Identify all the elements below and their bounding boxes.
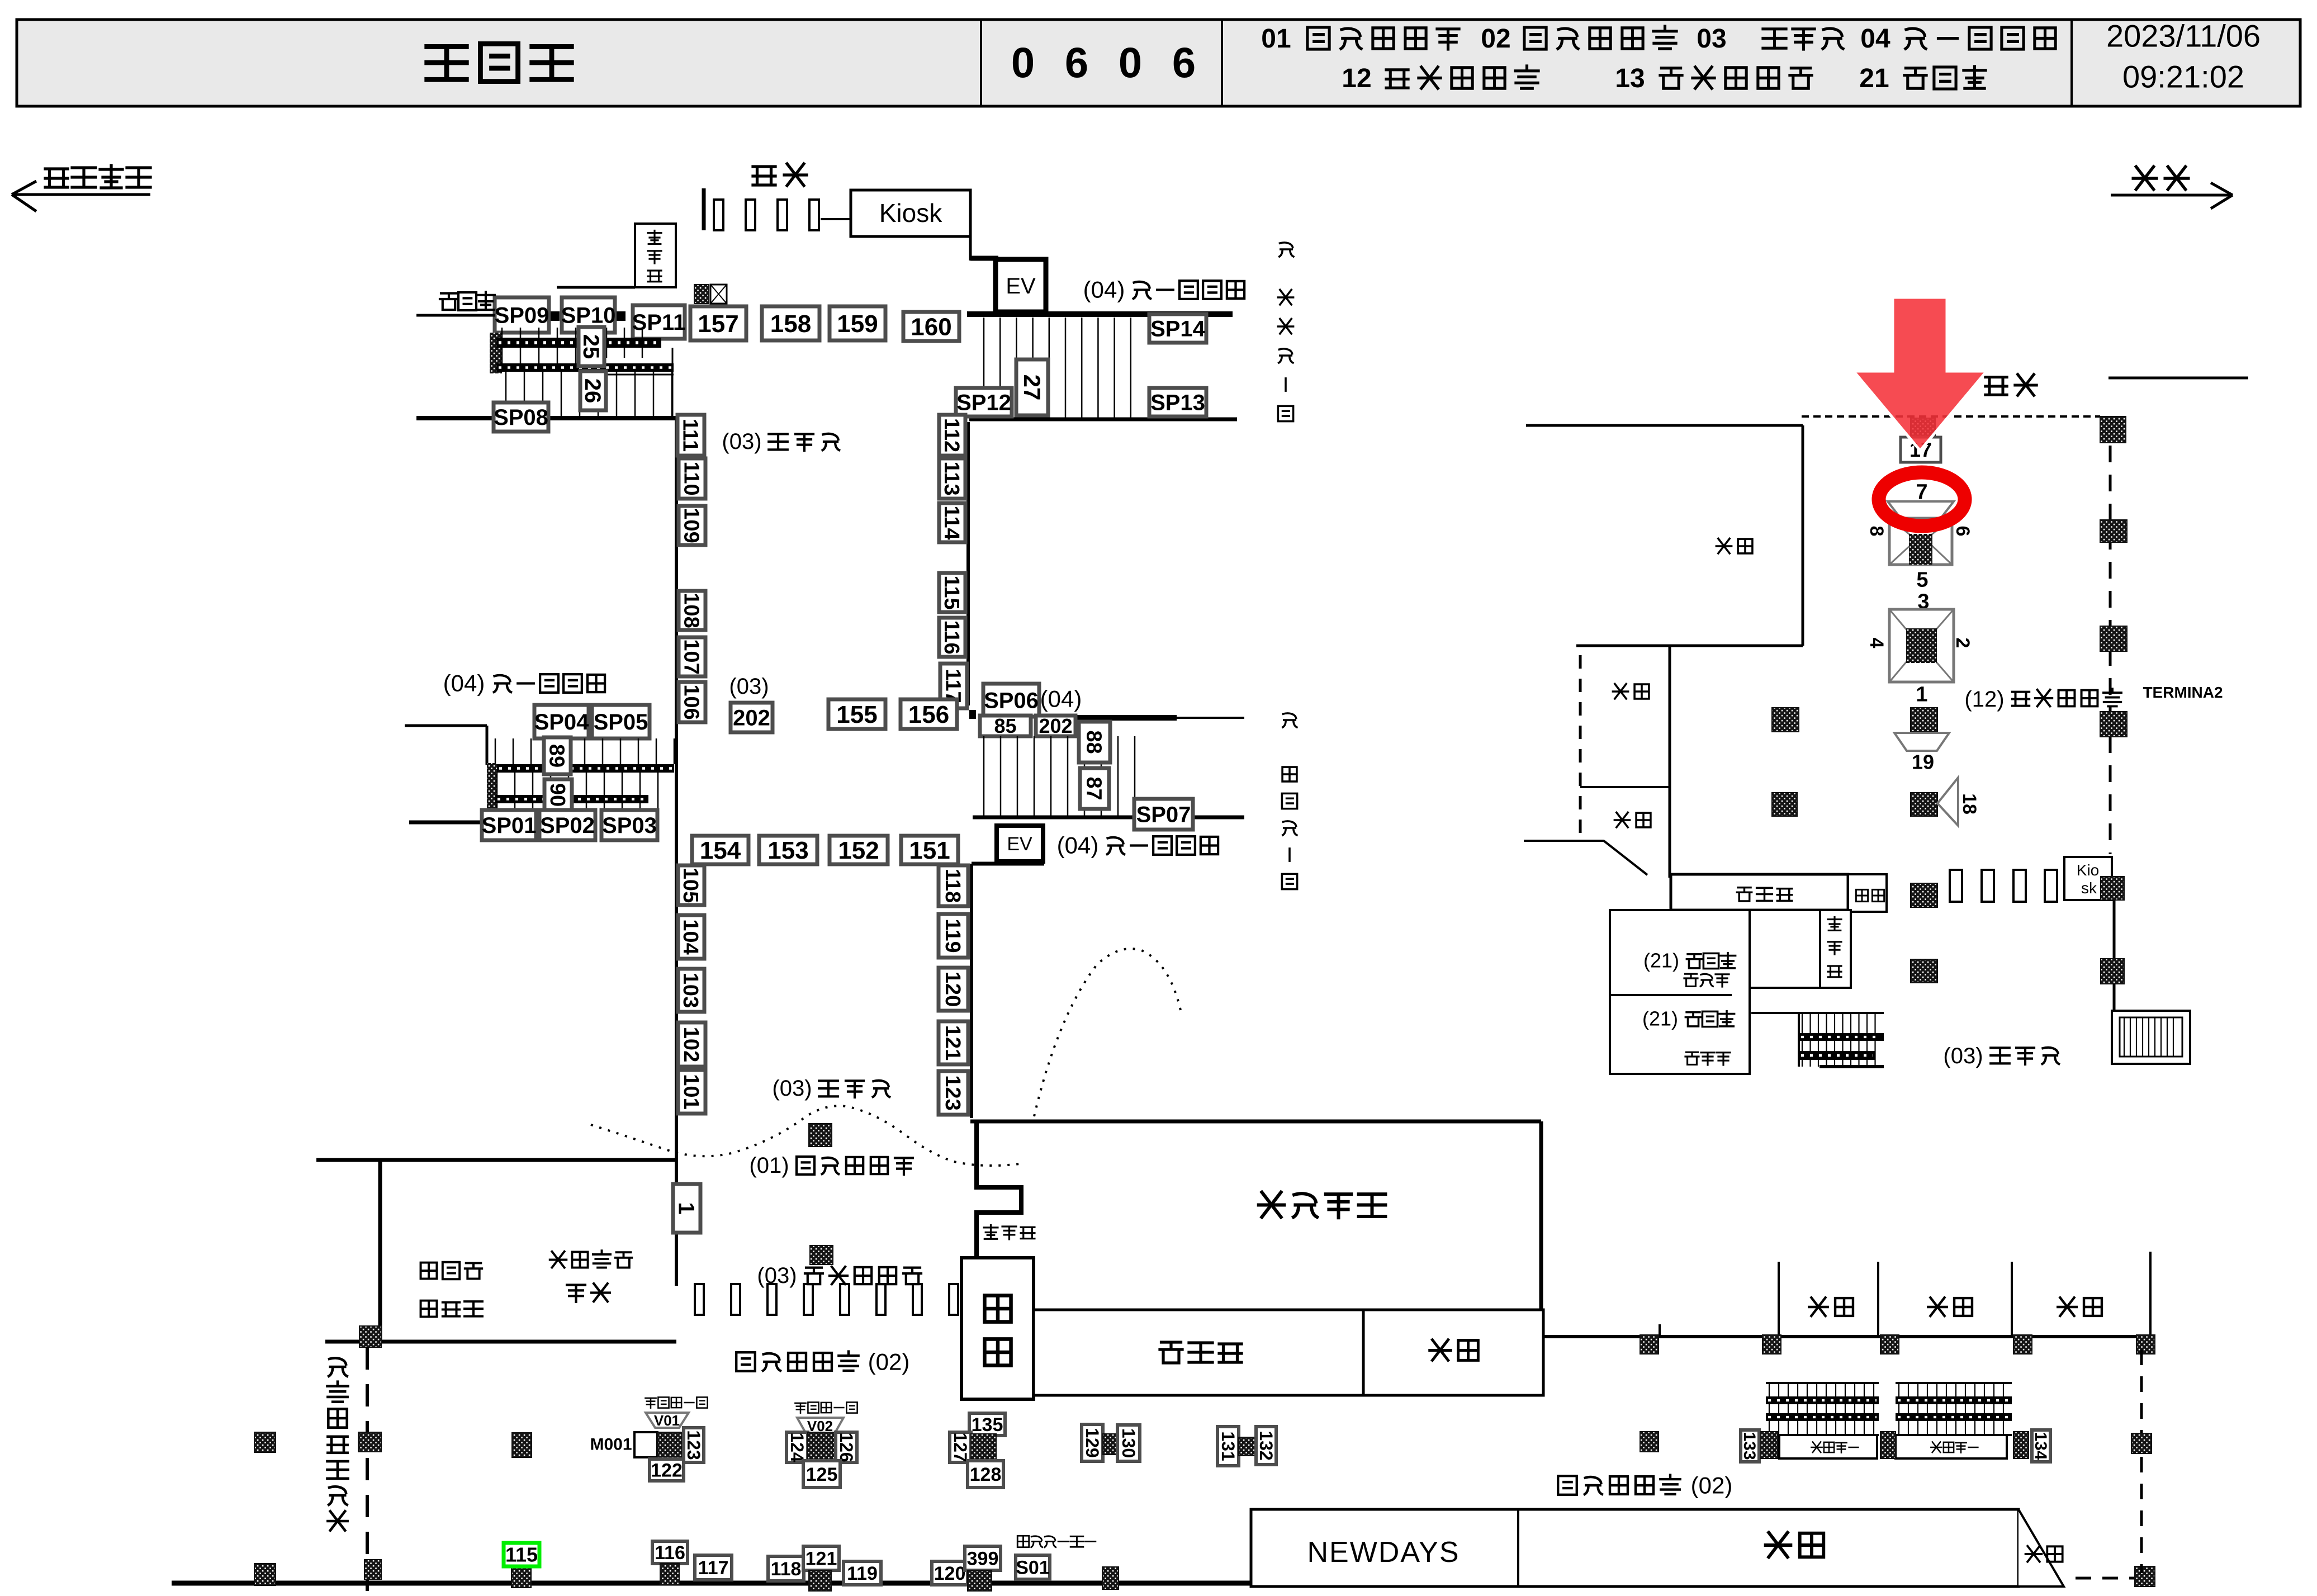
svg-text:SP06: SP06 [984, 689, 1039, 713]
svg-text:(01): (01) [749, 1153, 789, 1178]
svg-text:114: 114 [940, 505, 963, 539]
svg-text:4: 4 [1866, 638, 1887, 648]
svg-text:399: 399 [967, 1548, 999, 1569]
svg-text:(03): (03) [772, 1076, 812, 1101]
svg-text:90: 90 [546, 783, 569, 807]
svg-text:19: 19 [1912, 751, 1934, 774]
svg-text:129: 129 [1082, 1428, 1102, 1457]
svg-text:27: 27 [1019, 375, 1045, 401]
svg-text:134: 134 [2031, 1432, 2050, 1460]
svg-text:8: 8 [1866, 526, 1887, 537]
svg-text:(04): (04) [1057, 832, 1099, 859]
svg-text:130: 130 [1119, 1428, 1139, 1458]
svg-text:EV: EV [1006, 274, 1036, 299]
svg-text:SP12: SP12 [956, 391, 1011, 415]
svg-text:Kiosk: Kiosk [879, 198, 942, 228]
svg-text:115: 115 [505, 1543, 538, 1566]
svg-text:2: 2 [1952, 638, 1973, 648]
svg-text:SP07: SP07 [1136, 803, 1191, 827]
svg-text:115: 115 [940, 575, 963, 609]
svg-text:119: 119 [847, 1563, 878, 1584]
svg-text:(04): (04) [1083, 277, 1125, 303]
svg-text:135: 135 [972, 1414, 1003, 1436]
svg-text:108: 108 [680, 593, 703, 628]
svg-text:21: 21 [1859, 64, 1889, 93]
svg-text:85: 85 [994, 714, 1016, 737]
svg-text:SP09: SP09 [495, 304, 549, 328]
svg-text:132: 132 [1256, 1431, 1276, 1460]
svg-text:105: 105 [679, 868, 702, 903]
svg-text:133: 133 [1740, 1432, 1759, 1460]
svg-text:0: 0 [1011, 40, 1035, 87]
svg-text:18: 18 [1959, 793, 1980, 814]
svg-text:6: 6 [1065, 40, 1088, 87]
svg-text:03: 03 [1697, 24, 1726, 54]
svg-text:154: 154 [700, 837, 741, 864]
svg-text:153: 153 [767, 837, 808, 864]
svg-text:SP04: SP04 [534, 710, 590, 735]
svg-text:SP13: SP13 [1150, 391, 1205, 415]
svg-text:125: 125 [806, 1464, 838, 1485]
svg-text:(03): (03) [729, 674, 769, 699]
svg-text:128: 128 [970, 1464, 1002, 1485]
svg-text:SP08: SP08 [494, 405, 548, 430]
svg-text:123: 123 [684, 1430, 704, 1460]
svg-text:09:21:02: 09:21:02 [2122, 59, 2244, 94]
svg-text:(03): (03) [722, 429, 761, 454]
svg-text:EV: EV [1007, 833, 1032, 855]
svg-text:116: 116 [655, 1542, 685, 1564]
svg-text:124: 124 [787, 1432, 807, 1462]
svg-text:SP03: SP03 [602, 813, 657, 838]
svg-text:151: 151 [909, 837, 950, 864]
svg-text:202: 202 [733, 706, 770, 731]
svg-text:155: 155 [836, 701, 877, 728]
svg-text:NEWDAYS: NEWDAYS [1307, 1536, 1460, 1569]
svg-text:113: 113 [940, 461, 963, 495]
svg-text:122: 122 [651, 1460, 683, 1481]
svg-text:(03): (03) [1943, 1044, 1983, 1068]
svg-text:121: 121 [805, 1548, 837, 1569]
svg-text:25: 25 [579, 334, 603, 359]
svg-text:121: 121 [941, 1025, 964, 1060]
svg-text:1: 1 [674, 1202, 699, 1214]
svg-text:160: 160 [911, 313, 951, 340]
svg-text:5: 5 [1916, 568, 1928, 591]
svg-text:126: 126 [836, 1432, 856, 1462]
svg-text:116: 116 [940, 620, 963, 654]
svg-text:TERMINA2: TERMINA2 [2143, 684, 2223, 701]
svg-text:106: 106 [680, 684, 703, 719]
svg-text:26: 26 [580, 378, 605, 404]
svg-text:120: 120 [941, 972, 964, 1007]
svg-text:sk: sk [2081, 879, 2097, 897]
svg-text:119: 119 [941, 918, 964, 953]
svg-text:(02): (02) [868, 1349, 910, 1375]
svg-text:117: 117 [698, 1557, 729, 1579]
svg-text:157: 157 [698, 310, 738, 338]
svg-text:S01: S01 [1016, 1557, 1050, 1578]
svg-text:Kio: Kio [2077, 861, 2099, 879]
svg-text:2023/11/06: 2023/11/06 [2106, 18, 2261, 54]
svg-text:(12): (12) [1964, 687, 2004, 712]
svg-text:13: 13 [1615, 64, 1645, 93]
svg-text:118: 118 [941, 869, 964, 903]
svg-text:111: 111 [679, 419, 702, 452]
svg-text:M001: M001 [590, 1436, 632, 1454]
svg-text:103: 103 [679, 973, 702, 1008]
svg-text:107: 107 [680, 639, 703, 674]
svg-text:88: 88 [1082, 730, 1106, 754]
svg-text:(03): (03) [757, 1263, 797, 1288]
svg-text:SP10: SP10 [561, 304, 616, 328]
svg-text:(04): (04) [443, 670, 485, 697]
svg-text:202: 202 [1039, 714, 1072, 737]
svg-text:120: 120 [934, 1563, 966, 1584]
svg-text:156: 156 [908, 701, 949, 728]
svg-text:158: 158 [770, 310, 811, 338]
svg-text:SP02: SP02 [540, 813, 595, 838]
svg-text:89: 89 [545, 744, 568, 768]
svg-text:(02): (02) [1691, 1472, 1733, 1499]
svg-text:87: 87 [1082, 776, 1106, 800]
svg-text:(04): (04) [1040, 686, 1082, 712]
svg-text:02: 02 [1481, 24, 1510, 54]
svg-text:6: 6 [1172, 40, 1196, 87]
svg-text:(21): (21) [1643, 949, 1679, 972]
svg-text:127: 127 [950, 1432, 970, 1462]
svg-text:104: 104 [679, 919, 702, 954]
svg-text:118: 118 [771, 1559, 802, 1580]
svg-text:SP14: SP14 [1150, 317, 1206, 342]
svg-text:152: 152 [838, 837, 879, 864]
svg-text:109: 109 [680, 508, 703, 543]
svg-text:(21): (21) [1642, 1007, 1678, 1030]
svg-text:159: 159 [837, 310, 878, 338]
svg-text:04: 04 [1860, 24, 1890, 54]
svg-text:101: 101 [679, 1074, 703, 1109]
svg-text:112: 112 [940, 418, 963, 452]
svg-text:SP11: SP11 [632, 310, 686, 335]
svg-text:SP01: SP01 [482, 813, 537, 838]
svg-text:6: 6 [1952, 526, 1973, 537]
svg-text:0: 0 [1119, 40, 1142, 87]
svg-text:131: 131 [1218, 1431, 1238, 1461]
svg-text:SP05: SP05 [594, 710, 648, 735]
svg-text:12: 12 [1342, 64, 1371, 93]
svg-text:123: 123 [941, 1075, 964, 1110]
svg-text:102: 102 [679, 1027, 703, 1062]
svg-text:1: 1 [1916, 683, 1927, 706]
svg-text:V01: V01 [654, 1412, 680, 1429]
svg-text:01: 01 [1261, 24, 1291, 54]
svg-text:110: 110 [680, 461, 703, 495]
